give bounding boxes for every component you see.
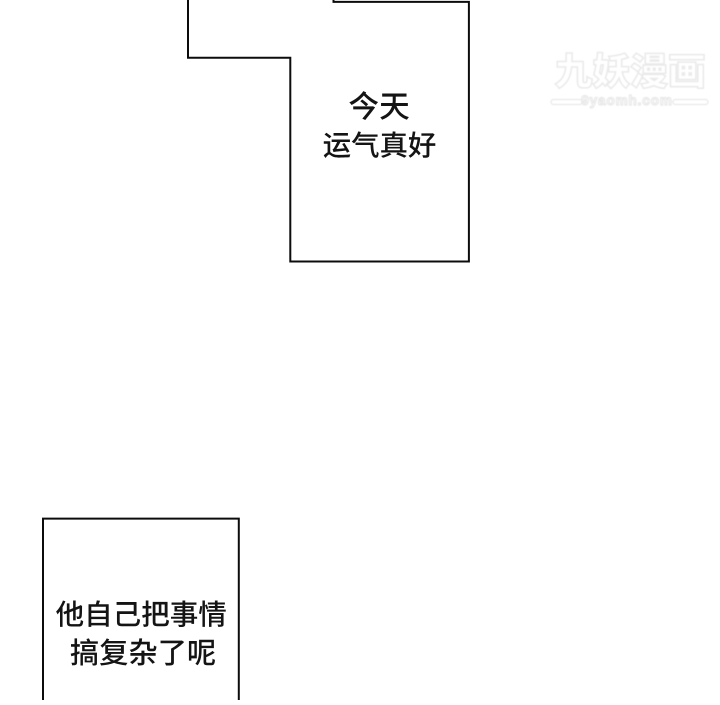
svg-text:9yaomh.com: 9yaomh.com: [581, 93, 673, 108]
